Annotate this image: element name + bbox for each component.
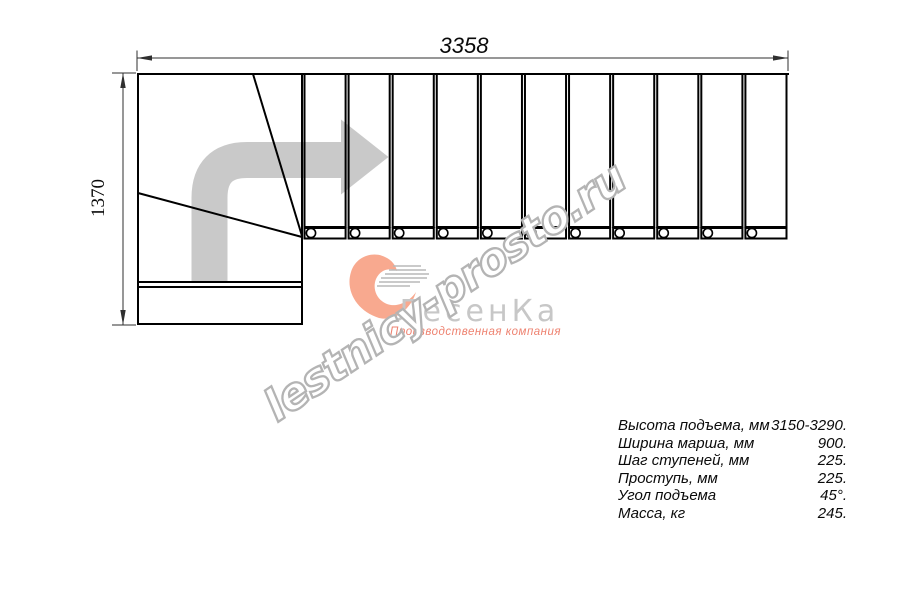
spec-value: 900. (818, 435, 847, 453)
baluster-icon (659, 228, 668, 237)
baluster-icon (350, 228, 359, 237)
spec-label: Проступь, мм (618, 470, 718, 488)
spec-value: 45°. (820, 487, 847, 505)
spec-label: Высота подъема, мм (618, 417, 770, 435)
baluster-icon (306, 228, 315, 237)
dimension-height-label: 1370 (88, 179, 109, 217)
spec-row-flight-width: Ширина марша, мм 900. (618, 435, 847, 453)
baluster-icon (615, 228, 624, 237)
spec-row-step-pitch: Шаг ступеней, мм 225. (618, 452, 847, 470)
spec-label: Угол подъема (618, 487, 716, 505)
spec-row-tread: Проступь, мм 225. (618, 470, 847, 488)
spec-row-height: Высота подъема, мм 3150-3290. (618, 417, 847, 435)
baluster-icon (395, 228, 404, 237)
spec-label: Масса, кг (618, 505, 685, 523)
spec-value: 245. (818, 505, 847, 523)
spec-value: 225. (818, 470, 847, 488)
baluster-icon (747, 228, 756, 237)
spec-row-angle: Угол подъема 45°. (618, 487, 847, 505)
spec-row-mass: Масса, кг 245. (618, 505, 847, 523)
spec-label: Ширина марша, мм (618, 435, 754, 453)
baluster-icon (439, 228, 448, 237)
baluster-icon (703, 228, 712, 237)
spec-value: 225. (818, 452, 847, 470)
dimension-width-label: 3358 (440, 33, 490, 58)
spec-value: 3150-3290. (771, 417, 847, 435)
specs-table: Высота подъема, мм 3150-3290. Ширина мар… (618, 417, 847, 523)
spec-label: Шаг ступеней, мм (618, 452, 749, 470)
